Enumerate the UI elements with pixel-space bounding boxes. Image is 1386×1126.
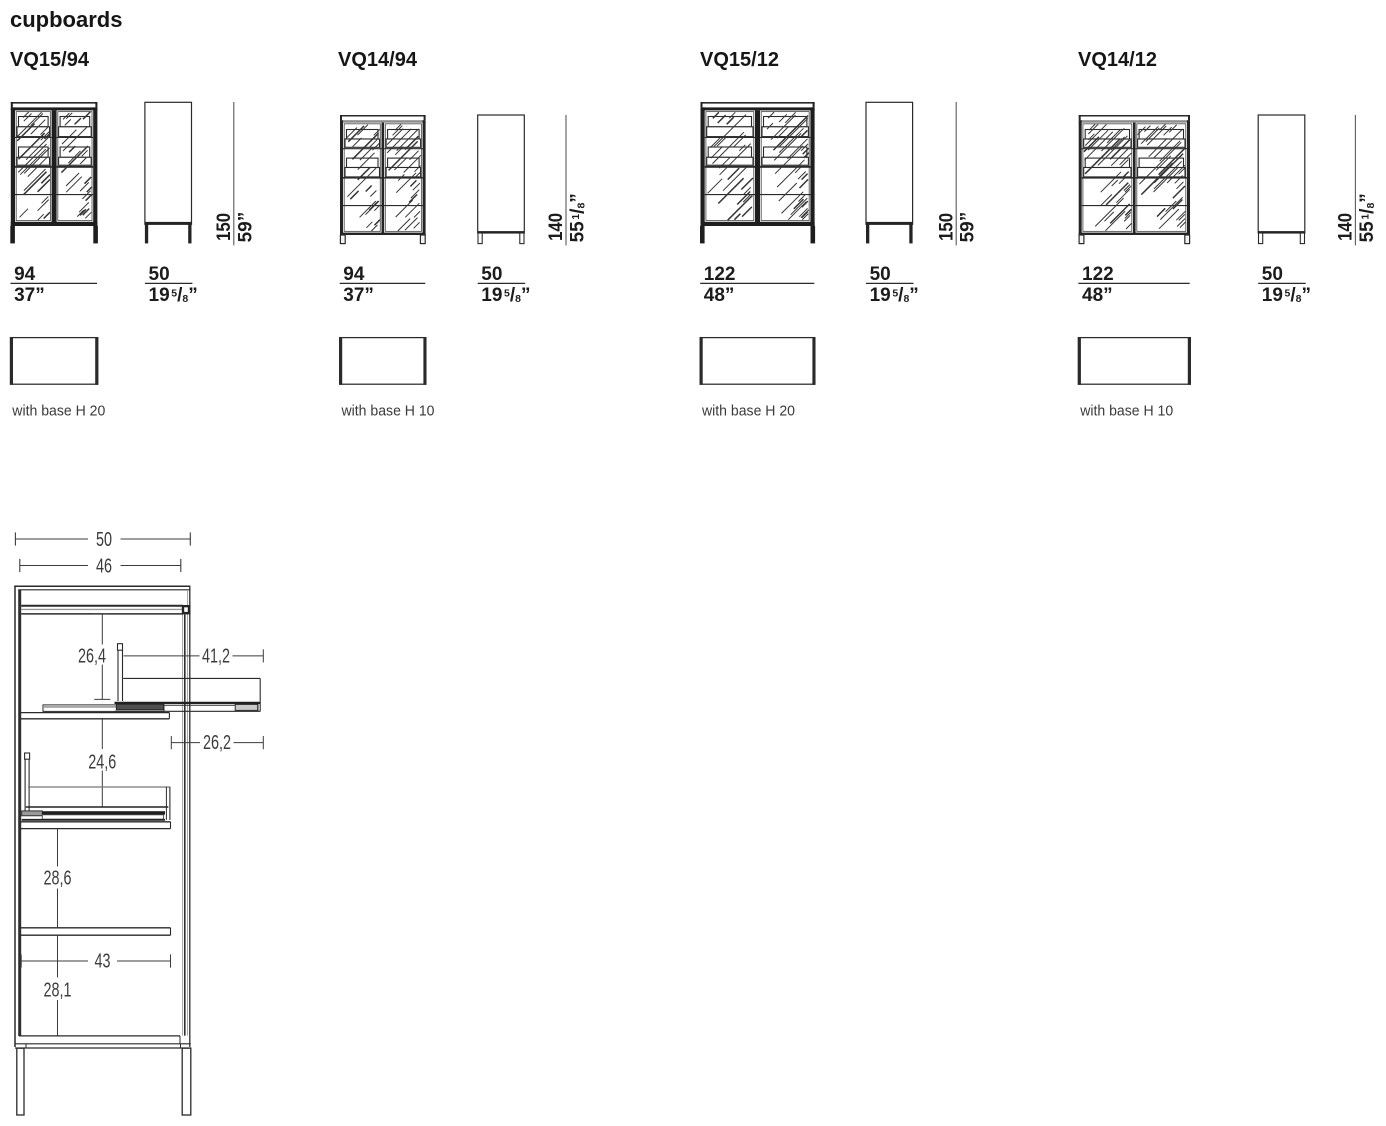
svg-text:551/8”: 551/8” bbox=[568, 193, 589, 242]
svg-text:150: 150 bbox=[214, 213, 235, 241]
svg-text:50: 50 bbox=[1262, 264, 1283, 285]
svg-text:41,2: 41,2 bbox=[202, 645, 230, 667]
svg-text:VQ14/12: VQ14/12 bbox=[1078, 49, 1157, 71]
svg-text:195/8”: 195/8” bbox=[481, 285, 530, 306]
svg-text:VQ14/94: VQ14/94 bbox=[338, 49, 418, 71]
svg-text:26,2: 26,2 bbox=[203, 732, 231, 754]
svg-text:37”: 37” bbox=[14, 285, 45, 306]
svg-text:59”: 59” bbox=[235, 212, 256, 243]
svg-text:551/8”: 551/8” bbox=[1357, 193, 1378, 242]
svg-text:50: 50 bbox=[96, 529, 112, 551]
svg-text:with base H 20: with base H 20 bbox=[701, 402, 795, 419]
svg-text:37”: 37” bbox=[343, 285, 374, 306]
svg-text:122: 122 bbox=[1082, 264, 1114, 285]
svg-text:28,6: 28,6 bbox=[44, 867, 72, 889]
svg-text:48”: 48” bbox=[1082, 285, 1113, 306]
svg-text:94: 94 bbox=[343, 264, 365, 285]
svg-text:28,1: 28,1 bbox=[44, 979, 72, 1001]
svg-text:VQ15/12: VQ15/12 bbox=[700, 49, 779, 71]
svg-text:cupboards: cupboards bbox=[10, 7, 122, 32]
svg-text:122: 122 bbox=[704, 264, 736, 285]
svg-text:26,4: 26,4 bbox=[78, 645, 106, 667]
svg-text:with base H 20: with base H 20 bbox=[11, 402, 105, 419]
svg-text:48”: 48” bbox=[704, 285, 735, 306]
svg-text:50: 50 bbox=[481, 264, 502, 285]
svg-text:50: 50 bbox=[149, 264, 170, 285]
svg-text:140: 140 bbox=[546, 213, 567, 241]
svg-text:195/8”: 195/8” bbox=[870, 285, 919, 306]
svg-text:VQ15/94: VQ15/94 bbox=[10, 49, 90, 71]
svg-text:195/8”: 195/8” bbox=[1262, 285, 1311, 306]
svg-text:195/8”: 195/8” bbox=[149, 285, 198, 306]
svg-text:94: 94 bbox=[14, 264, 36, 285]
svg-text:with base H 10: with base H 10 bbox=[1079, 402, 1173, 419]
svg-text:43: 43 bbox=[95, 951, 111, 973]
svg-text:with base H 10: with base H 10 bbox=[341, 402, 435, 419]
svg-text:50: 50 bbox=[870, 264, 891, 285]
svg-text:59”: 59” bbox=[958, 212, 979, 243]
svg-text:46: 46 bbox=[96, 556, 112, 578]
svg-text:24,6: 24,6 bbox=[88, 751, 116, 773]
svg-text:140: 140 bbox=[1336, 213, 1357, 241]
svg-text:150: 150 bbox=[936, 213, 957, 241]
